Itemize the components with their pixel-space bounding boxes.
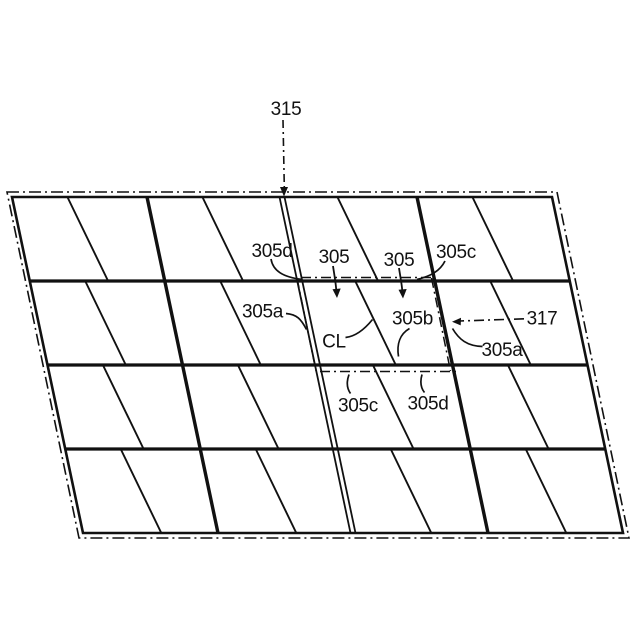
cell-diagonal [103, 365, 144, 449]
leader-305-right [399, 268, 407, 299]
label-305a-left: 305a [242, 302, 284, 323]
label-cl: CL [322, 332, 346, 353]
cell-diagonal [337, 197, 378, 281]
patent-figure: 315 305d 305 305 305c 305a CL 305b 317 3… [0, 0, 640, 640]
leader-305a-right [453, 329, 483, 347]
leader-305b [398, 329, 410, 357]
pixel-chain-outline [297, 278, 458, 372]
label-305d-top: 305d [251, 241, 292, 262]
arrowhead-down-icon [399, 289, 407, 299]
cell-diagonal [355, 281, 396, 365]
leader-cl [346, 320, 373, 338]
label-305c-bottom: 305c [338, 396, 378, 417]
leader-305c-bottom [347, 375, 350, 394]
label-305a-right: 305a [481, 340, 523, 361]
pixel-chain-left [297, 278, 316, 371]
cell-diagonal [67, 197, 108, 281]
leader-317 [452, 318, 524, 326]
label-305c-top: 305c [436, 242, 476, 263]
label-305b: 305b [392, 309, 433, 330]
cell-diagonal [508, 365, 549, 449]
cell-diagonal [472, 197, 513, 281]
label-305d-bottom: 305d [407, 394, 448, 415]
cell-diagonal [121, 449, 162, 533]
cell-diagonal [220, 281, 261, 365]
cell-diagonal [526, 449, 567, 533]
label-317: 317 [527, 309, 558, 330]
cell-diagonal [256, 449, 297, 533]
patent-figure-page: 315 305d 305 305 305c 305a CL 305b 317 3… [0, 0, 640, 640]
arrowhead-down-icon [333, 289, 341, 299]
pixel-chain-right [432, 278, 451, 371]
leader-305d-bottom [421, 375, 425, 393]
row-borders [30, 281, 606, 449]
label-305-right: 305 [384, 250, 415, 271]
label-305-left: 305 [319, 247, 350, 268]
label-315: 315 [271, 99, 302, 120]
cell-diagonal [85, 281, 126, 365]
leader-305a-left [286, 314, 307, 330]
cell-diagonal [238, 365, 279, 449]
cell-diagonal [391, 449, 432, 533]
cell-diagonal [202, 197, 243, 281]
arrowhead-left-icon [452, 318, 461, 326]
leader-315 [280, 120, 288, 197]
